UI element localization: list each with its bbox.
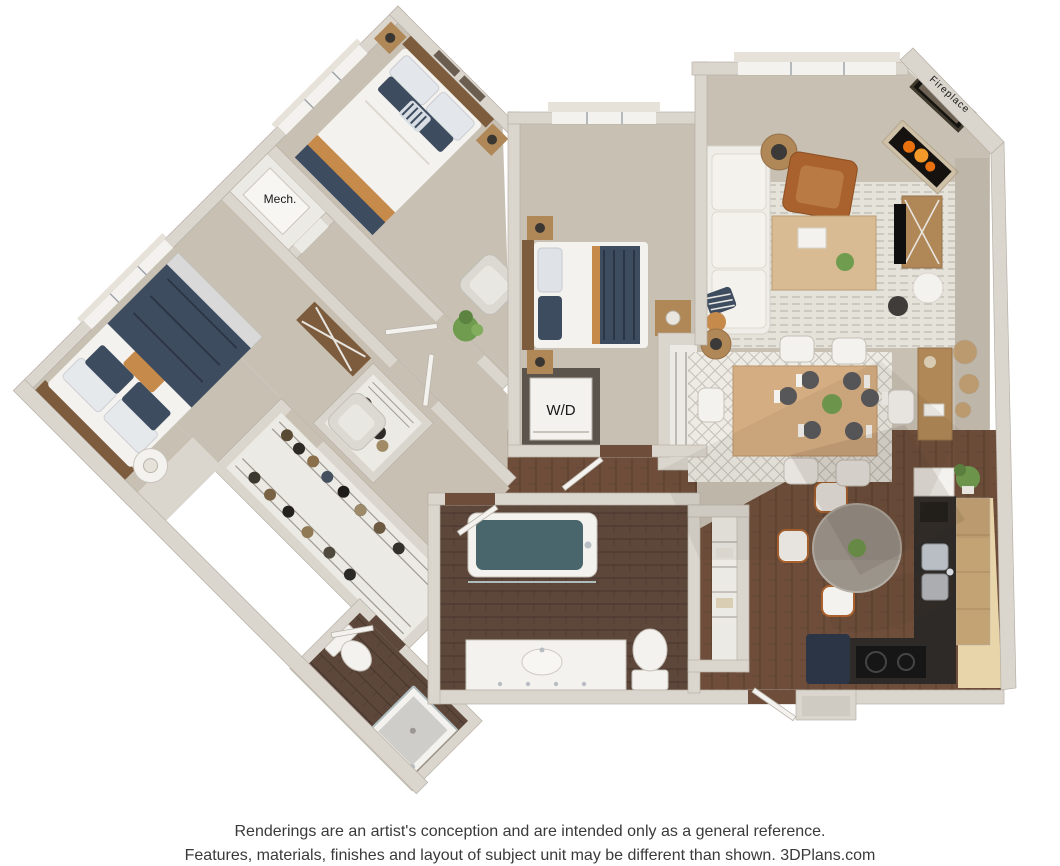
floor-plan-page: Mech. W/D Fireplace Renderings are an ar…	[0, 0, 1060, 866]
bedroom-3-door-opening	[600, 445, 652, 457]
sphere-lamp-icon	[913, 273, 943, 303]
tv-console-icon	[894, 196, 942, 268]
tv-icon	[894, 204, 906, 264]
bedroom-3-window	[548, 102, 660, 124]
leather-armchair-icon	[781, 151, 858, 222]
floor-plan-svg: Mech. W/D Fireplace	[0, 0, 1060, 866]
entry-landing	[796, 690, 856, 720]
entry-bench-icon	[806, 634, 850, 684]
coffee-table-icon	[772, 216, 876, 290]
wd-label: W/D	[546, 402, 575, 419]
vase-icon	[836, 253, 854, 271]
vanity-icon	[466, 640, 626, 690]
book-icon	[798, 228, 826, 248]
stool-icon	[888, 296, 908, 316]
nightstand-icon	[655, 300, 691, 336]
bathtub-icon	[468, 513, 597, 582]
toilet-icon	[632, 629, 668, 690]
disclaimer-line-1: Renderings are an artist's conception an…	[0, 820, 1060, 844]
sofa-icon	[698, 146, 770, 334]
main-bathroom	[440, 505, 688, 693]
bathroom-door-opening	[445, 493, 495, 505]
disclaimer: Renderings are an artist's conception an…	[0, 820, 1060, 866]
disclaimer-line-2: Features, materials, finishes and layout…	[0, 844, 1060, 866]
mech-label: Mech.	[264, 192, 297, 206]
living-room-window	[734, 52, 900, 75]
cooktop-icon	[856, 646, 926, 678]
